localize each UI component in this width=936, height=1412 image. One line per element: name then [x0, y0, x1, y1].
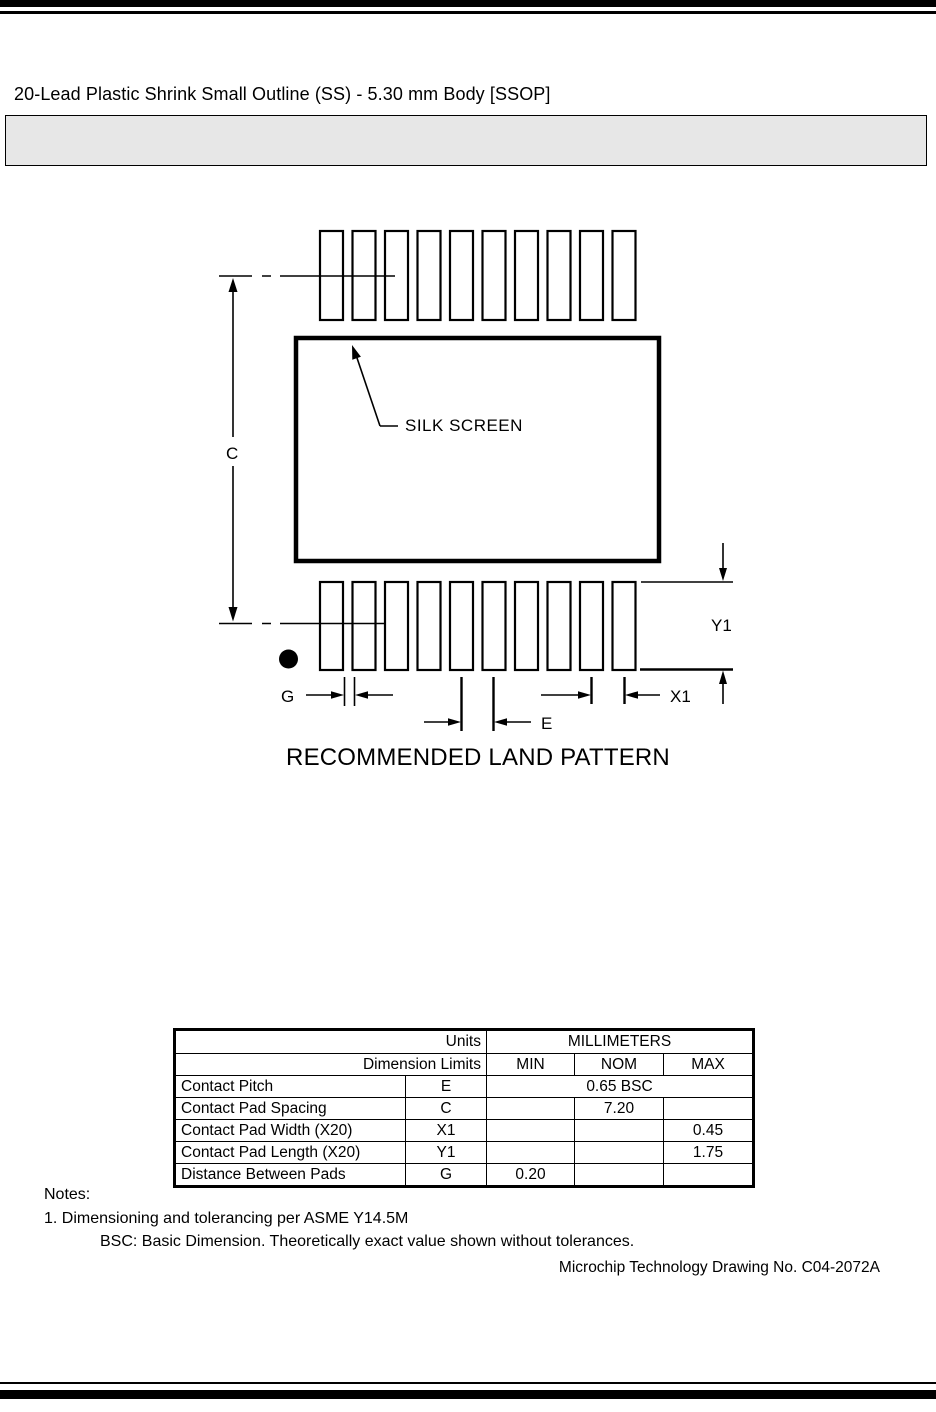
land-pad: [613, 231, 636, 320]
note-item-1: 1. Dimensioning and tolerancing per ASME…: [44, 1210, 408, 1228]
land-pad: [580, 231, 603, 320]
land-pad: [580, 582, 603, 670]
units-value-cell: MILLIMETERS: [487, 1030, 754, 1054]
dim-label-g: G: [281, 687, 294, 706]
nom-value-cell: [575, 1164, 664, 1187]
dim-contact-pitch: E: [424, 677, 552, 733]
dimension-symbol-cell: G: [406, 1164, 487, 1187]
dim-label-c: C: [226, 444, 238, 463]
arrowhead-left-icon: [494, 718, 507, 726]
max-value-cell: 0.45: [664, 1120, 754, 1142]
arrowhead-down-icon: [229, 607, 238, 622]
bottom-pad-row: [320, 582, 636, 670]
land-pad: [548, 231, 571, 320]
land-pad: [613, 582, 636, 670]
max-header-cell: MAX: [664, 1054, 754, 1076]
land-pad: [450, 582, 473, 670]
dim-contact-pad-width: X1: [541, 677, 691, 706]
min-value-cell: 0.20: [487, 1164, 575, 1187]
table-row: Contact Pitch E 0.65 BSC: [175, 1076, 754, 1098]
table-row: Contact Pad Length (X20) Y1 1.75: [175, 1142, 754, 1164]
arrowhead-left-icon: [355, 691, 368, 699]
drawing-caption: RECOMMENDED LAND PATTERN: [178, 744, 778, 772]
min-value-cell: [487, 1142, 575, 1164]
arrowhead-right-icon: [331, 691, 344, 699]
max-value-cell: [664, 1098, 754, 1120]
dim-pad-length: Y1: [640, 543, 733, 704]
dim-label-e: E: [541, 714, 552, 733]
dimension-symbol-cell: E: [406, 1076, 487, 1098]
land-pad: [515, 231, 538, 320]
note-item-bsc: BSC: Basic Dimension. Theoretically exac…: [100, 1233, 634, 1251]
arrowhead-up-icon: [229, 278, 238, 292]
dim-label-x1: X1: [670, 687, 691, 706]
dimension-table: Units MILLIMETERS Dimension Limits MIN N…: [173, 1028, 755, 1188]
table-row: Contact Pad Spacing C 7.20: [175, 1098, 754, 1120]
units-label-cell: Units: [175, 1030, 487, 1054]
dimension-symbol-cell: Y1: [406, 1142, 487, 1164]
table-row: Contact Pad Width (X20) X1 0.45: [175, 1120, 754, 1142]
drawing-number: Microchip Technology Drawing No. C04-207…: [0, 1259, 880, 1277]
land-pad: [515, 582, 538, 670]
arrowhead-down-icon: [719, 568, 727, 581]
bottom-thick-rule: [0, 1390, 936, 1399]
min-header-cell: MIN: [487, 1054, 575, 1076]
table-row-dimension-limits: Dimension Limits MIN NOM MAX: [175, 1054, 754, 1076]
nom-value-cell: [575, 1142, 664, 1164]
bottom-thin-rule: [0, 1382, 936, 1384]
dimension-symbol-cell: X1: [406, 1120, 487, 1142]
arrowhead-right-icon: [448, 718, 461, 726]
pin1-indicator-dot: [279, 650, 298, 669]
dimension-value-span-cell: 0.65 BSC: [487, 1076, 754, 1098]
table-row: Distance Between Pads G 0.20: [175, 1164, 754, 1187]
min-value-cell: [487, 1120, 575, 1142]
dimension-name-cell: Contact Pad Spacing: [175, 1098, 406, 1120]
arrowhead-left-icon: [625, 691, 638, 699]
arrowhead-right-icon: [578, 691, 591, 699]
dimension-name-cell: Contact Pad Width (X20): [175, 1120, 406, 1142]
dimension-limits-label-cell: Dimension Limits: [175, 1054, 487, 1076]
table-row-units: Units MILLIMETERS: [175, 1030, 754, 1054]
silkscreen-label: SILK SCREEN: [405, 416, 523, 435]
nom-header-cell: NOM: [575, 1054, 664, 1076]
nom-value-cell: 7.20: [575, 1098, 664, 1120]
land-pad: [483, 231, 506, 320]
datasheet-page: 20-Lead Plastic Shrink Small Outline (SS…: [0, 0, 936, 1412]
dimension-name-cell: Contact Pitch: [175, 1076, 406, 1098]
land-pad: [418, 231, 441, 320]
land-pattern-drawing: C SILK SCREEN Y1 G: [0, 0, 936, 780]
dim-contact-pad-spacing: C: [226, 278, 238, 622]
max-value-cell: [664, 1164, 754, 1187]
land-pad: [320, 582, 343, 670]
min-value-cell: [487, 1098, 575, 1120]
land-pad: [385, 582, 408, 670]
land-pad: [353, 582, 376, 670]
dimension-name-cell: Contact Pad Length (X20): [175, 1142, 406, 1164]
land-pad: [548, 582, 571, 670]
land-pad: [450, 231, 473, 320]
land-pad: [418, 582, 441, 670]
dim-label-y1: Y1: [711, 616, 732, 635]
nom-value-cell: [575, 1120, 664, 1142]
land-pad: [483, 582, 506, 670]
arrowhead-up-icon: [719, 671, 727, 685]
notes-heading: Notes:: [44, 1186, 90, 1204]
silkscreen-outline: [296, 338, 659, 561]
dimension-name-cell: Distance Between Pads: [175, 1164, 406, 1187]
dim-distance-between-pads: G: [281, 677, 393, 706]
dimension-symbol-cell: C: [406, 1098, 487, 1120]
max-value-cell: 1.75: [664, 1142, 754, 1164]
